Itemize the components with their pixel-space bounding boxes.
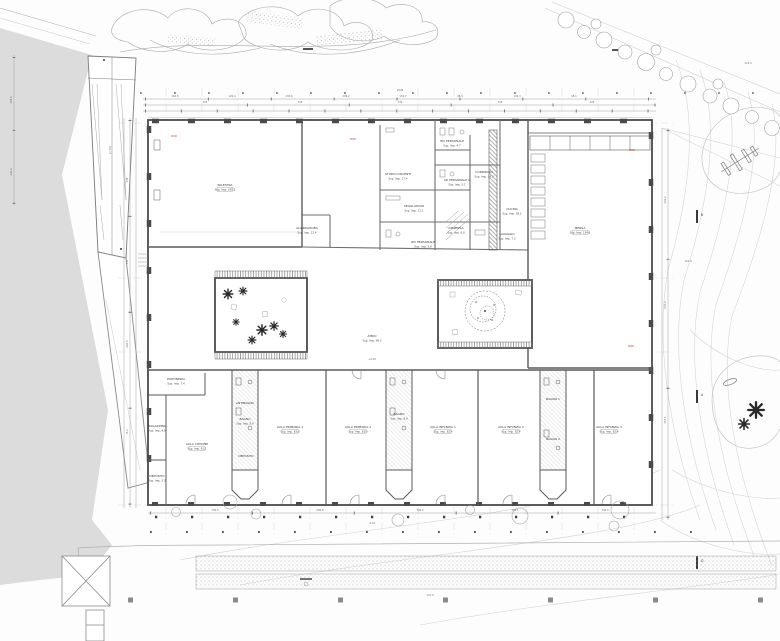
courtyard-east bbox=[438, 280, 532, 348]
svg-text:WC PERSONALE: WC PERSONALE bbox=[440, 139, 464, 143]
svg-text:R90: R90 bbox=[350, 137, 356, 141]
svg-text:180.1: 180.1 bbox=[511, 508, 519, 512]
svg-text:Sup. Imp. 38.2: Sup. Imp. 38.2 bbox=[503, 212, 522, 216]
svg-text:425: 425 bbox=[590, 100, 595, 104]
svg-text:103.4: 103.4 bbox=[744, 61, 752, 65]
south-landscape bbox=[78, 541, 780, 602]
svg-text:Sup. Imp. 134.6: Sup. Imp. 134.6 bbox=[570, 231, 591, 235]
svg-text:Sup. Imp. 98.2: Sup. Imp. 98.2 bbox=[363, 339, 382, 343]
play-equipment-icon bbox=[717, 141, 764, 180]
service-core bbox=[232, 370, 258, 499]
svg-text:AULA PRIMARIA 2: AULA PRIMARIA 2 bbox=[345, 425, 371, 429]
svg-text:246.9: 246.9 bbox=[9, 168, 13, 176]
svg-text:GUARDAROBA: GUARDAROBA bbox=[296, 226, 318, 230]
play-equipment-icon-2 bbox=[723, 377, 764, 429]
svg-text:730: 730 bbox=[498, 100, 503, 104]
svg-text:AULA PRIMARIA 1: AULA PRIMARIA 1 bbox=[277, 425, 303, 429]
courtyard-west bbox=[215, 271, 307, 359]
svg-text:MENSA: MENSA bbox=[575, 226, 587, 230]
svg-text:135.0: 135.0 bbox=[285, 94, 293, 98]
svg-text:138: 138 bbox=[125, 177, 129, 182]
svg-text:BAGNO 2: BAGNO 2 bbox=[546, 437, 560, 441]
section-mark-a: A bbox=[701, 393, 704, 397]
section-markers: B A D bbox=[696, 210, 704, 569]
svg-text:Sup. Imp. 7.4: Sup. Imp. 7.4 bbox=[167, 382, 185, 386]
svg-text:425: 425 bbox=[203, 100, 208, 104]
svg-text:LAVAGGIO: LAVAGGIO bbox=[499, 232, 515, 236]
svg-text:Sup. Imp. 190.5: Sup. Imp. 190.5 bbox=[215, 188, 236, 192]
svg-text:Sup. Imp. 5.1: Sup. Imp. 5.1 bbox=[448, 183, 466, 187]
svg-text:Sup. Imp. 7.5: Sup. Imp. 7.5 bbox=[498, 237, 516, 241]
gravel-strip-1 bbox=[196, 556, 776, 571]
svg-text:PORTINERIA: PORTINERIA bbox=[167, 377, 186, 381]
svg-text:Sup. Imp. 4.5: Sup. Imp. 4.5 bbox=[148, 429, 166, 433]
floor-plan-drawing: B A D bbox=[0, 0, 780, 641]
svg-text:101.8: 101.8 bbox=[426, 593, 434, 597]
svg-text:162.5: 162.5 bbox=[171, 94, 179, 98]
svg-text:CUCINA: CUCINA bbox=[506, 207, 519, 211]
vegetation-layer bbox=[112, 0, 624, 54]
svg-text:Sup. Imp. 62.4: Sup. Imp. 62.4 bbox=[600, 430, 619, 434]
svg-text:Sup. Imp. 62.4: Sup. Imp. 62.4 bbox=[434, 430, 453, 434]
svg-text:Sup. Imp. 61.1: Sup. Imp. 61.1 bbox=[188, 447, 207, 451]
svg-text:Sup. Imp. 62.4: Sup. Imp. 62.4 bbox=[502, 430, 521, 434]
svg-text:Sup. Imp. 8.9: Sup. Imp. 8.9 bbox=[236, 422, 254, 426]
svg-text:232.2: 232.2 bbox=[663, 196, 667, 204]
svg-text:700: 700 bbox=[125, 259, 129, 264]
svg-text:WC PERSONALE: WC PERSONALE bbox=[411, 240, 435, 244]
west-entry-steps bbox=[138, 254, 148, 266]
svg-text:Sup. Imp. 6.8: Sup. Imp. 6.8 bbox=[447, 231, 465, 235]
section-mark-b: B bbox=[701, 213, 703, 217]
svg-text:75.2: 75.2 bbox=[125, 429, 129, 435]
svg-text:-0.02: -0.02 bbox=[369, 521, 376, 525]
svg-text:Sup. Imp. 3.9: Sup. Imp. 3.9 bbox=[414, 245, 432, 249]
svg-text:730.4: 730.4 bbox=[601, 508, 609, 512]
svg-text:Sup. Imp. 14.3: Sup. Imp. 14.3 bbox=[475, 175, 494, 179]
svg-text:STUDIO DOCENTI: STUDIO DOCENTI bbox=[385, 172, 411, 176]
svg-text:SPOGLIATOIO: SPOGLIATOIO bbox=[404, 204, 425, 208]
svg-text:AULA INFANZIA 2: AULA INFANZIA 2 bbox=[498, 425, 524, 429]
svg-text:BAGNO: BAGNO bbox=[394, 412, 406, 416]
svg-text:604.3: 604.3 bbox=[663, 301, 667, 309]
dim-total: 2545 bbox=[397, 88, 404, 92]
svg-text:249.2: 249.2 bbox=[342, 94, 350, 98]
svg-text:SP. PERSONALE 1: SP. PERSONALE 1 bbox=[444, 178, 470, 182]
svg-text:Sup. Imp. 63.8: Sup. Imp. 63.8 bbox=[349, 430, 368, 434]
svg-text:BAGNO 1: BAGNO 1 bbox=[546, 397, 560, 401]
svg-text:AULA COMUNE: AULA COMUNE bbox=[186, 442, 208, 446]
svg-text:Sup. Imp. 63.8: Sup. Imp. 63.8 bbox=[281, 430, 300, 434]
svg-text:98.4: 98.4 bbox=[457, 94, 463, 98]
svg-text:730.5: 730.5 bbox=[211, 508, 219, 512]
svg-text:R90: R90 bbox=[629, 148, 635, 152]
svg-text:134.3: 134.3 bbox=[513, 94, 521, 98]
svg-text:DEPOSITO: DEPOSITO bbox=[149, 474, 165, 478]
svg-text:AULA INFANZIA 3: AULA INFANZIA 3 bbox=[596, 425, 622, 429]
room-label-bagno-1: BAGNO 1 bbox=[546, 397, 560, 401]
svg-text:DEPOSITO: DEPOSITO bbox=[238, 454, 254, 458]
room-label-aula-comune: AULA COMUNESup. Imp. 61.1 bbox=[186, 442, 208, 451]
svg-text:p=8%: p=8% bbox=[108, 145, 112, 154]
svg-text:102.9: 102.9 bbox=[684, 259, 692, 263]
svg-text:Sup. Imp. 8.9: Sup. Imp. 8.9 bbox=[390, 417, 408, 421]
room-label-bagno-2: BAGNO 2 bbox=[546, 437, 560, 441]
room-label-antibagno: ANTIBAGNO bbox=[236, 401, 255, 405]
svg-text:AULA INFANZIA 1: AULA INFANZIA 1 bbox=[430, 425, 456, 429]
floor-plan-sheet: B A D bbox=[0, 0, 780, 641]
svg-text:Sup. Imp. 5.2: Sup. Imp. 5.2 bbox=[148, 479, 166, 483]
svg-text:PALESTRA: PALESTRA bbox=[218, 183, 234, 187]
svg-text:R90: R90 bbox=[628, 344, 634, 348]
svg-text:CORRIDOIO: CORRIDOIO bbox=[475, 170, 493, 174]
utility-cabin bbox=[62, 556, 110, 641]
room-label-deposito-2: DEPOSITO bbox=[238, 454, 254, 458]
svg-text:454.1: 454.1 bbox=[663, 416, 667, 424]
svg-text:Sup. Imp. 4.7: Sup. Imp. 4.7 bbox=[443, 144, 461, 148]
svg-text:Sup. Imp. 12.4: Sup. Imp. 12.4 bbox=[298, 231, 317, 235]
svg-text:120.4: 120.4 bbox=[228, 94, 236, 98]
svg-text:Sup. Imp. 11.1: Sup. Imp. 11.1 bbox=[405, 209, 424, 213]
gravel-strip-2 bbox=[196, 574, 776, 589]
svg-text:ANTIBAGNO: ANTIBAGNO bbox=[236, 401, 255, 405]
svg-text:BAGNO: BAGNO bbox=[240, 417, 252, 421]
svg-text:730: 730 bbox=[298, 100, 303, 104]
svg-text:MAGAZZINO: MAGAZZINO bbox=[148, 424, 167, 428]
svg-text:128.6: 128.6 bbox=[9, 96, 13, 104]
playground-area-2 bbox=[712, 356, 780, 448]
svg-text:730: 730 bbox=[398, 100, 403, 104]
service-core-3 bbox=[540, 370, 566, 499]
svg-text:+0.00: +0.00 bbox=[368, 357, 376, 361]
svg-text:DISPENSA: DISPENSA bbox=[448, 226, 464, 230]
svg-text:95.1: 95.1 bbox=[571, 94, 577, 98]
svg-text:R90: R90 bbox=[171, 134, 177, 138]
svg-text:292.5: 292.5 bbox=[125, 340, 129, 348]
svg-text:ATRIO: ATRIO bbox=[368, 334, 378, 338]
service-core-2 bbox=[386, 370, 412, 499]
svg-text:730.2: 730.2 bbox=[416, 508, 424, 512]
svg-text:Sup. Imp. 17.4: Sup. Imp. 17.4 bbox=[389, 177, 408, 181]
svg-text:152.7: 152.7 bbox=[399, 94, 407, 98]
svg-text:240.6: 240.6 bbox=[316, 508, 324, 512]
